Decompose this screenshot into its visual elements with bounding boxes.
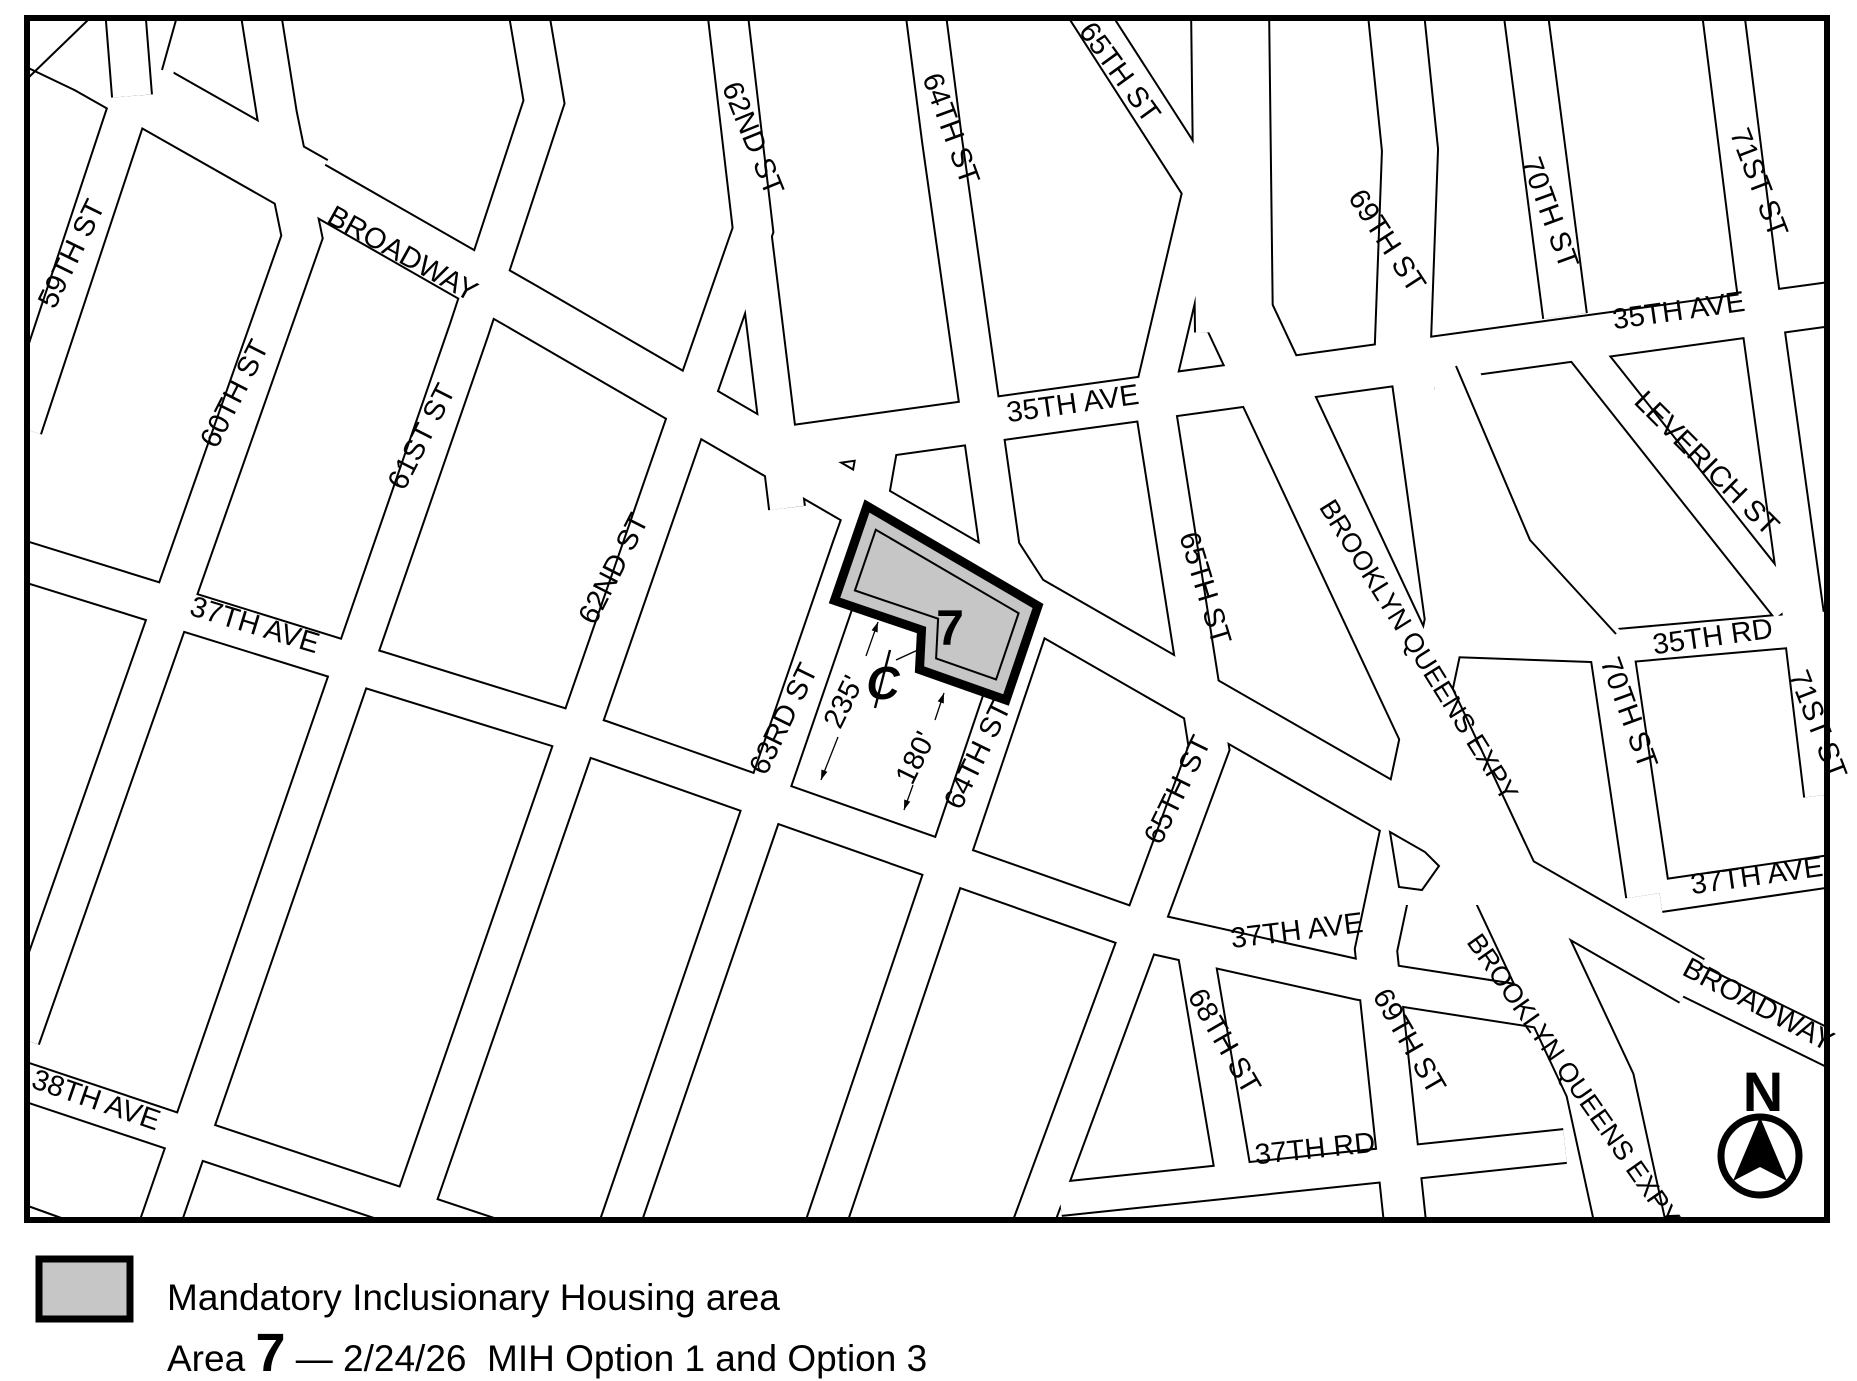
svg-text:Mandatory Inclusionary Housing: Mandatory Inclusionary Housing area xyxy=(167,1277,780,1318)
svg-text:N: N xyxy=(1743,1060,1783,1123)
svg-text:7: 7 xyxy=(936,600,964,656)
svg-text:C: C xyxy=(866,657,900,709)
